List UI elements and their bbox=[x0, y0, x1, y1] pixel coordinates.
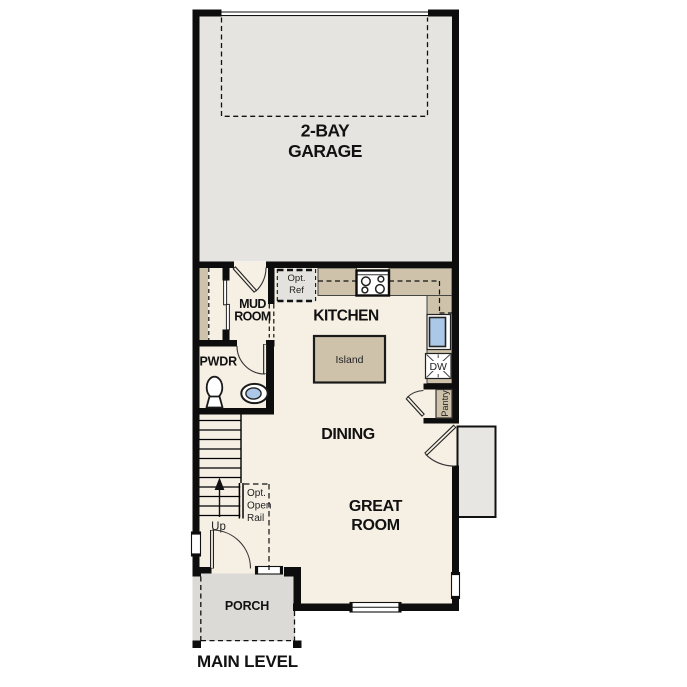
svg-text:MAIN LEVEL: MAIN LEVEL bbox=[197, 652, 298, 671]
svg-text:Island: Island bbox=[335, 354, 363, 366]
svg-text:DW: DW bbox=[429, 361, 447, 373]
svg-text:PWDR: PWDR bbox=[200, 355, 238, 369]
svg-text:Opt.: Opt. bbox=[247, 488, 266, 499]
svg-text:ROOM: ROOM bbox=[234, 310, 271, 324]
svg-text:Opt.: Opt. bbox=[288, 273, 306, 284]
svg-text:Pantry: Pantry bbox=[440, 390, 450, 417]
svg-text:2-BAY: 2-BAY bbox=[301, 121, 350, 141]
svg-text:GARAGE: GARAGE bbox=[288, 141, 362, 161]
svg-text:PORCH: PORCH bbox=[225, 599, 269, 613]
svg-text:Ref: Ref bbox=[289, 285, 304, 296]
svg-text:Open: Open bbox=[247, 501, 271, 512]
svg-text:Rail: Rail bbox=[247, 513, 264, 524]
svg-text:DINING: DINING bbox=[321, 426, 375, 443]
svg-text:KITCHEN: KITCHEN bbox=[313, 308, 379, 325]
svg-text:GREAT: GREAT bbox=[349, 498, 403, 515]
svg-text:ROOM: ROOM bbox=[351, 517, 400, 534]
